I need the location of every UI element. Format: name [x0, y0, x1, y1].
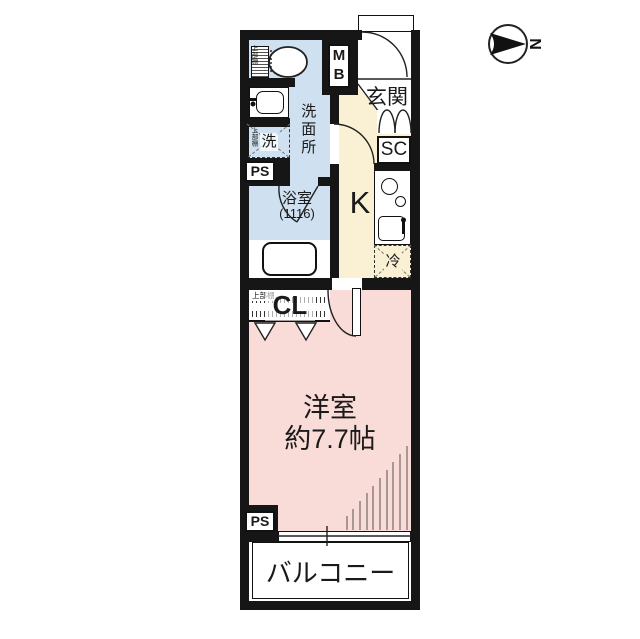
compass-north-label: N [526, 38, 543, 50]
washroom-label: 洗面所 [298, 82, 316, 177]
closet-label: CL [265, 290, 315, 321]
entrance-label: 玄関 [362, 86, 412, 110]
toilet-bowl [269, 47, 307, 77]
plan-linework: N [0, 0, 640, 639]
kitchen-label: K [340, 186, 380, 220]
pipe-space-bottom-label: PS [245, 511, 275, 532]
balcony-label: バルコニー [252, 558, 409, 588]
sink-faucet-icon [401, 218, 406, 223]
washer-shelf-note: 上部棚 [248, 127, 258, 157]
floor-plan: N M B 玄関 SC 洗面所 上部棚 上部棚 洗 PS 浴室 (1116) K… [0, 0, 640, 639]
pipe-space-top-label: PS [245, 161, 275, 182]
sink-faucet-icon [402, 221, 405, 234]
shoe-closet-label: SC [377, 136, 411, 164]
closet-folding-door-right [296, 323, 316, 340]
toilet-shelf-note: 上部棚 [248, 45, 258, 77]
main-room-size-label: 約7.7帖 [249, 424, 411, 455]
main-room-label: 洋室 [249, 393, 411, 424]
compass: N [489, 25, 543, 63]
closet-folding-door-left [255, 323, 275, 340]
washer-label: 洗 [260, 133, 278, 151]
sloped-ceiling-hatch [347, 446, 407, 530]
meter-box-label: M B [328, 44, 350, 88]
fridge-label: 冷 [384, 253, 402, 271]
vanity-faucet-icon [249, 98, 256, 101]
washroom-door-swing [334, 124, 374, 164]
room-door-swing [328, 290, 356, 336]
vanity-faucet-icon [251, 102, 256, 107]
bathroom-size-label: (1116) [262, 207, 332, 222]
